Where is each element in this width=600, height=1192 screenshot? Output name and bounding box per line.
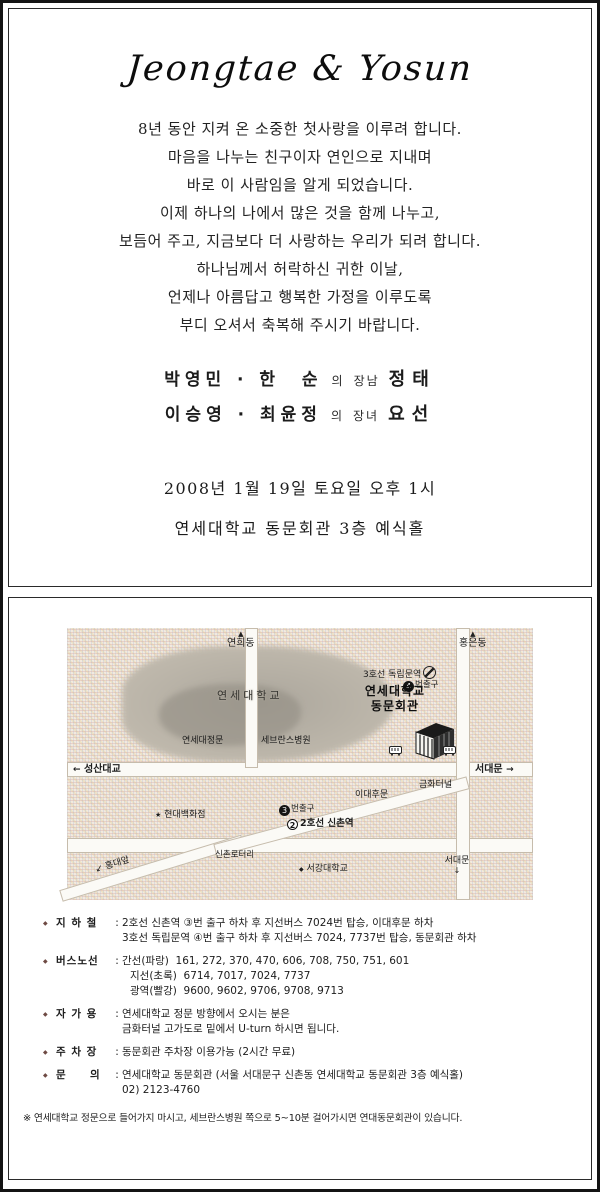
bride-parents-row: 이승영 · 최윤정 의 장녀 요선: [9, 398, 591, 433]
walking-note: ※ 연세대학교 정문으로 들어가지 마시고, 세브란스병원 쪽으로 5~10분 …: [23, 1112, 581, 1126]
arrow-right-icon: →: [506, 765, 514, 775]
directions-parking-row: ◆ 주 차 장 : 동문회관 주차장 이용가능 (2시간 무료): [43, 1045, 573, 1060]
location-map: ▲ 연희동 ▲ 홍은동 3호선 독립문역 4번출구 연세대학교 연세대학교 동문…: [67, 628, 533, 900]
marker-icon: ◆: [299, 866, 304, 873]
directions-subway-row: ◆ 지 하 철 : 2호선 신촌역 ③번 출구 하차 후 지선버스 7024번 …: [43, 916, 573, 946]
geumhwa-tunnel-label: 금화터널: [419, 780, 452, 791]
direction-hongeundong: ▲ 홍은동: [459, 630, 487, 649]
subway-logo-icon: [423, 666, 436, 679]
row-label: 지 하 철: [56, 916, 112, 931]
row-label: 주 차 장: [56, 1045, 112, 1060]
star-marker-icon: ★: [155, 811, 161, 819]
row-content: 간선(파랑) 161, 272, 370, 470, 606, 708, 750…: [122, 954, 573, 999]
bride-name: 요선: [388, 398, 435, 432]
car-line-2: 금화터널 고가도로 밑에서 U-turn 하시면 됩니다.: [122, 1022, 573, 1037]
dongnimmun-station-label: 3호선 독립문역: [363, 666, 436, 681]
direction-seodaemun-south: 서대문 ↓: [437, 856, 477, 875]
colon: :: [112, 954, 122, 969]
campus-label: 연세대학교: [217, 690, 283, 701]
direction-label: 홍은동: [459, 638, 487, 649]
arrow-up-icon: ▲: [238, 630, 243, 638]
row-label: 자 가 용: [56, 1007, 112, 1022]
bullet-icon: ◆: [43, 916, 56, 931]
directions-car-row: ◆ 자 가 용 : 연세대학교 정문 방향에서 오시는 분은 금화터널 고가도로…: [43, 1007, 573, 1037]
message-line: 바로 이 사람임을 알게 되었습니다.: [9, 171, 591, 199]
direction-yeonhuidong: ▲ 연희동: [227, 630, 255, 649]
colon: :: [112, 1007, 122, 1022]
invitation-card: Jeongtae & Yosun 8년 동안 지켜 온 소중한 첫사랑을 이루려…: [8, 8, 592, 587]
direction-label: 서대문: [475, 764, 503, 775]
direction-seongsan-bridge: ← 성산대교: [73, 764, 121, 776]
message-line: 부디 오셔서 축복해 주시기 바랍니다.: [9, 311, 591, 339]
bride-relation: 장녀: [353, 399, 379, 433]
inquiry-address: 연세대학교 동문회관 (서울 서대문구 신촌동 연세대학교 동문회관 3층 예식…: [122, 1068, 573, 1083]
car-line-1: 연세대학교 정문 방향에서 오시는 분은: [122, 1007, 573, 1022]
row-content: 2호선 신촌역 ③번 출구 하차 후 지선버스 7024번 탑승, 이대후문 하…: [122, 916, 573, 946]
couple-names-title: Jeongtae & Yosun: [8, 49, 592, 89]
message-line: 언제나 아름답고 행복한 가정을 이루도록: [9, 283, 591, 311]
arrow-down-left-icon: ↙: [94, 863, 104, 875]
severance-hospital-label: 세브란스병원: [261, 736, 311, 747]
relation-particle: 의: [332, 364, 345, 398]
alumni-hall-label: 연세대학교 동문회관: [343, 684, 447, 714]
arrow-left-icon: ←: [73, 765, 81, 775]
hyundai-dept-store-label: ★ 현대백화점: [155, 810, 206, 821]
inquiry-phone: 02) 2123-4760: [122, 1083, 573, 1098]
message-line: 하나님께서 허락하신 귀한 이날,: [9, 255, 591, 283]
hall-name-line1: 연세대학교: [365, 684, 425, 699]
groom-relation: 장남: [354, 364, 380, 398]
row-label: 문 의: [56, 1068, 112, 1083]
colon: :: [112, 1068, 122, 1083]
arrow-up-icon: ▲: [470, 630, 475, 638]
row-content: 연세대학교 동문회관 (서울 서대문구 신촌동 연세대학교 동문회관 3층 예식…: [122, 1068, 573, 1098]
colon: :: [112, 1045, 122, 1060]
poi-label: 현대백화점: [164, 810, 205, 820]
sogang-univ-label: ◆ 서강대학교: [299, 864, 348, 875]
main-gate-label: 연세대정문: [182, 736, 223, 747]
directions-bus-row: ◆ 버스노선 : 간선(파랑) 161, 272, 370, 470, 606,…: [43, 954, 573, 999]
bullet-icon: ◆: [43, 1045, 56, 1060]
directions-card: ▲ 연희동 ▲ 홍은동 3호선 독립문역 4번출구 연세대학교 연세대학교 동문…: [8, 597, 592, 1180]
groom-parents-names: 박영민 · 한 순: [164, 363, 322, 397]
bus-express-routes: 광역(빨강) 9600, 9602, 9706, 9708, 9713: [122, 984, 573, 999]
station-name: 2호선 신촌역: [300, 818, 354, 829]
invitation-message: 8년 동안 지켜 온 소중한 첫사랑을 이루려 합니다. 마음을 나누는 친구이…: [9, 115, 591, 339]
wedding-datetime: 2008년 1월 19일 토요일 오후 1시: [9, 475, 591, 499]
bus-stop-icon: [443, 746, 456, 756]
subway-line-2: 3호선 독립문역 ④번 출구 하차 후 지선버스 7024, 7737번 탑승,…: [122, 931, 573, 946]
directions-list: ◆ 지 하 철 : 2호선 신촌역 ③번 출구 하차 후 지선버스 7024번 …: [43, 916, 573, 1098]
groom-parents-row: 박영민 · 한 순 의 장남 정태: [9, 363, 591, 398]
bullet-icon: ◆: [43, 1007, 56, 1022]
groom-name: 정태: [389, 363, 436, 397]
row-content: 연세대학교 정문 방향에서 오시는 분은 금화터널 고가도로 밑에서 U-tur…: [122, 1007, 573, 1037]
arrow-down-icon: ↓: [454, 867, 461, 875]
message-line: 8년 동안 지켜 온 소중한 첫사랑을 이루려 합니다.: [9, 115, 591, 143]
station-name: 3호선 독립문역: [363, 670, 421, 680]
direction-seodaemun-east: 서대문 →: [475, 764, 514, 776]
colon: :: [112, 916, 122, 931]
relation-particle: 의: [331, 399, 344, 433]
bus-branch-routes: 지선(초록) 6714, 7017, 7024, 7737: [122, 969, 573, 984]
parking-line: 동문회관 주차장 이용가능 (2시간 무료): [122, 1045, 573, 1060]
hall-name-line2: 동문회관: [371, 699, 419, 714]
sinchon-station-label: 22호선 신촌역: [287, 818, 354, 830]
message-line: 이제 하나의 나에서 많은 것을 함께 나누고,: [9, 199, 591, 227]
wedding-venue: 연세대학교 동문회관 3층 예식홀: [9, 515, 591, 539]
bullet-icon: ◆: [43, 954, 56, 969]
direction-label: 성산대교: [84, 764, 121, 775]
sinchon-exit-label: 3번출구: [279, 804, 314, 816]
poi-label: 서강대학교: [307, 864, 348, 874]
bride-parents-names: 이승영 · 최윤정: [165, 398, 322, 432]
sinchon-rotary-label: 신촌로터리: [215, 850, 254, 861]
row-label: 버스노선: [56, 954, 112, 969]
line-2-badge: 2: [287, 819, 298, 830]
exit-number-badge: 3: [279, 805, 290, 816]
bullet-icon: ◆: [43, 1068, 56, 1083]
bus-stop-icon: [389, 746, 402, 756]
directions-inquiry-row: ◆ 문 의 : 연세대학교 동문회관 (서울 서대문구 신촌동 연세대학교 동문…: [43, 1068, 573, 1098]
ewha-back-gate-label: 이대후문: [355, 790, 388, 801]
bus-trunk-routes: 간선(파랑) 161, 272, 370, 470, 606, 708, 750…: [122, 954, 573, 969]
subway-line-1: 2호선 신촌역 ③번 출구 하차 후 지선버스 7024번 탑승, 이대후문 하…: [122, 916, 573, 931]
message-line: 보듬어 주고, 지금보다 더 사랑하는 우리가 되려 합니다.: [9, 227, 591, 255]
row-content: 동문회관 주차장 이용가능 (2시간 무료): [122, 1045, 573, 1060]
direction-label: 연희동: [227, 638, 255, 649]
parents-block: 박영민 · 한 순 의 장남 정태 이승영 · 최윤정 의 장녀 요선: [9, 363, 591, 433]
exit-suffix: 번출구: [291, 804, 314, 814]
message-line: 마음을 나누는 친구이자 연인으로 지내며: [9, 143, 591, 171]
